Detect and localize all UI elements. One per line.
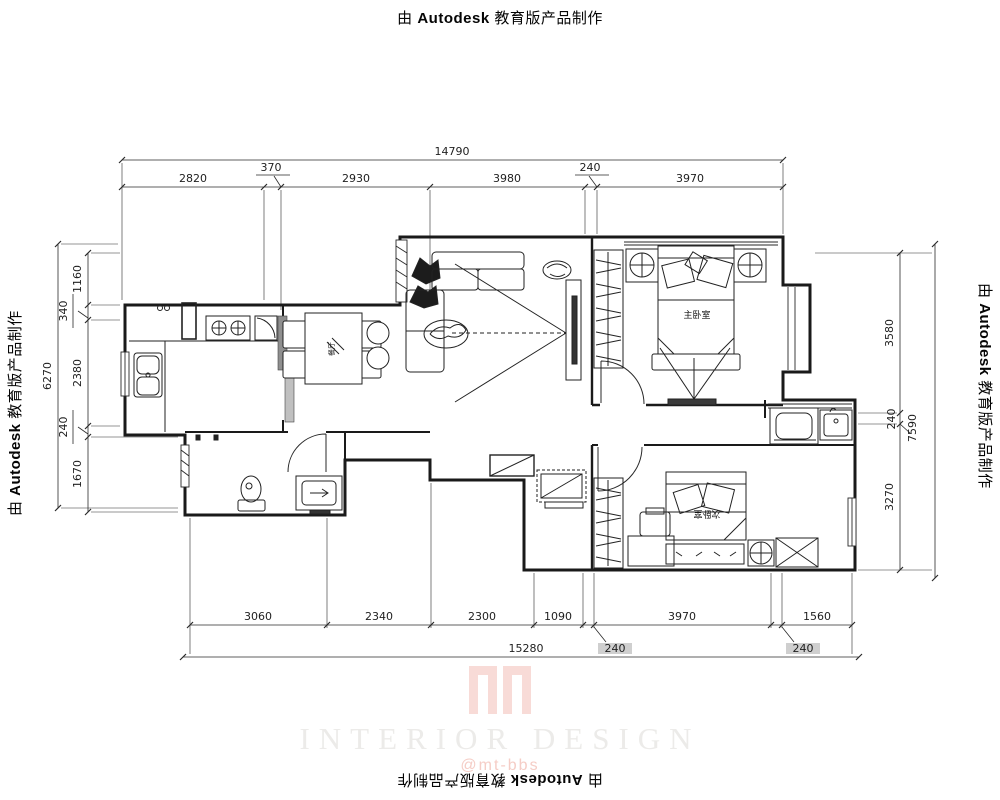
dim-bottom-seg: 3060 <box>244 610 272 623</box>
dim-leaders-bottom <box>594 627 794 642</box>
dim-left-seg: 1670 <box>71 460 84 488</box>
toilet-detail <box>246 483 252 489</box>
dim-left-seg: 1160 <box>71 265 84 293</box>
plant-icon <box>410 286 438 308</box>
dim-bottom-seg: 1090 <box>544 610 572 623</box>
master-bedroom-label: 主卧室 <box>683 309 710 321</box>
dim-top-seg: 2820 <box>179 172 207 185</box>
hall-cabinet-diagonal <box>541 474 582 498</box>
dining-label: 餐厅 <box>327 342 336 356</box>
master-tv-sightlines <box>660 348 730 399</box>
dim-bottom-seg: 1560 <box>803 610 831 623</box>
floor-plan-svg: 14790 2820 370 2930 3980 240 3970 3060 2… <box>0 0 1000 800</box>
ac-unit-cross <box>776 538 818 567</box>
bath2 <box>770 408 852 444</box>
master-bedroom <box>594 246 766 405</box>
washer-base <box>310 510 330 514</box>
coffee-table-decor <box>430 324 466 338</box>
dining-chair <box>283 351 307 378</box>
dim-top-seg: 240 <box>580 161 601 174</box>
wall-mark <box>214 435 218 440</box>
sink-basin <box>137 356 159 374</box>
floor-plan-page: 由 Autodesk 教育版产品制作 由 Autodesk 教育版产品制作 由 … <box>0 0 1000 800</box>
kitchen-counter <box>129 341 278 432</box>
hall-shelf <box>545 502 583 508</box>
dim-bottom-overall: 15280 <box>509 642 544 655</box>
bed-headboard <box>658 246 734 258</box>
dim-top-seg: 370 <box>261 161 282 174</box>
dining-chair <box>283 321 307 348</box>
master-bay-window <box>788 287 795 370</box>
bedroom2 <box>594 472 818 568</box>
kitchen-sink <box>134 353 162 397</box>
dim-bottom-seg: 240 <box>793 642 814 655</box>
bed-blanket-folds <box>658 300 734 354</box>
sofa-seat <box>478 269 524 290</box>
bed-headboard <box>666 472 746 484</box>
washer-arrow-icon <box>310 489 328 497</box>
washing-machine-drum <box>776 413 812 439</box>
dim-left-seg: 2380 <box>71 359 84 387</box>
dining <box>283 313 389 384</box>
dim-right-seg: 240 <box>885 409 898 430</box>
bedroom2-door-arc <box>598 447 642 491</box>
dim-top-seg: 3970 <box>676 172 704 185</box>
dim-right-seg: 3580 <box>883 319 896 347</box>
dim-bottom-seg: 2300 <box>468 610 496 623</box>
dim-left-seg: 340 <box>57 301 70 322</box>
corner-cabinet <box>255 316 277 340</box>
dim-right-overall: 7590 <box>906 414 919 442</box>
sofa-back <box>432 252 524 269</box>
pillow <box>697 255 733 287</box>
second-bedroom-label: 次卧室 <box>693 508 720 520</box>
dim-bottom-seg: 240 <box>605 642 626 655</box>
faucet-icon <box>834 419 838 423</box>
master-top-window <box>624 242 778 245</box>
dim-right-seg: 3270 <box>883 483 896 511</box>
refrigerator <box>182 303 196 339</box>
bathroom <box>196 435 342 514</box>
living-room <box>406 252 581 402</box>
dim-ticks-right <box>897 241 938 581</box>
wall-mark <box>196 435 200 440</box>
master-tv-icon <box>668 399 716 405</box>
dim-top-seg: 2930 <box>342 172 370 185</box>
dim-left-seg: 240 <box>57 417 70 438</box>
sink-basin <box>137 377 159 395</box>
dim-top-seg: 3980 <box>493 172 521 185</box>
tv-icon <box>572 296 577 364</box>
stool <box>367 347 389 369</box>
hall-cabinet-diagonal <box>490 455 534 476</box>
bath2-basin <box>824 414 848 436</box>
kitchen <box>129 303 278 432</box>
dim-bottom-seg: 2340 <box>365 610 393 623</box>
chair-back <box>646 508 664 514</box>
bed-master <box>658 258 734 354</box>
dim-bottom-seg: 3970 <box>668 610 696 623</box>
side-plant-leaves <box>547 264 567 277</box>
dim-left-overall: 6270 <box>41 362 54 390</box>
corner-cabinet-arc <box>257 318 275 338</box>
toilet-bowl <box>241 476 261 502</box>
plant-icon <box>412 258 440 284</box>
stool <box>367 322 389 344</box>
rug-pattern <box>676 552 736 556</box>
pillow <box>662 259 695 288</box>
dim-extensions-right <box>815 253 932 570</box>
bathroom-door-arc <box>288 434 326 472</box>
dim-top-overall: 14790 <box>435 145 470 158</box>
